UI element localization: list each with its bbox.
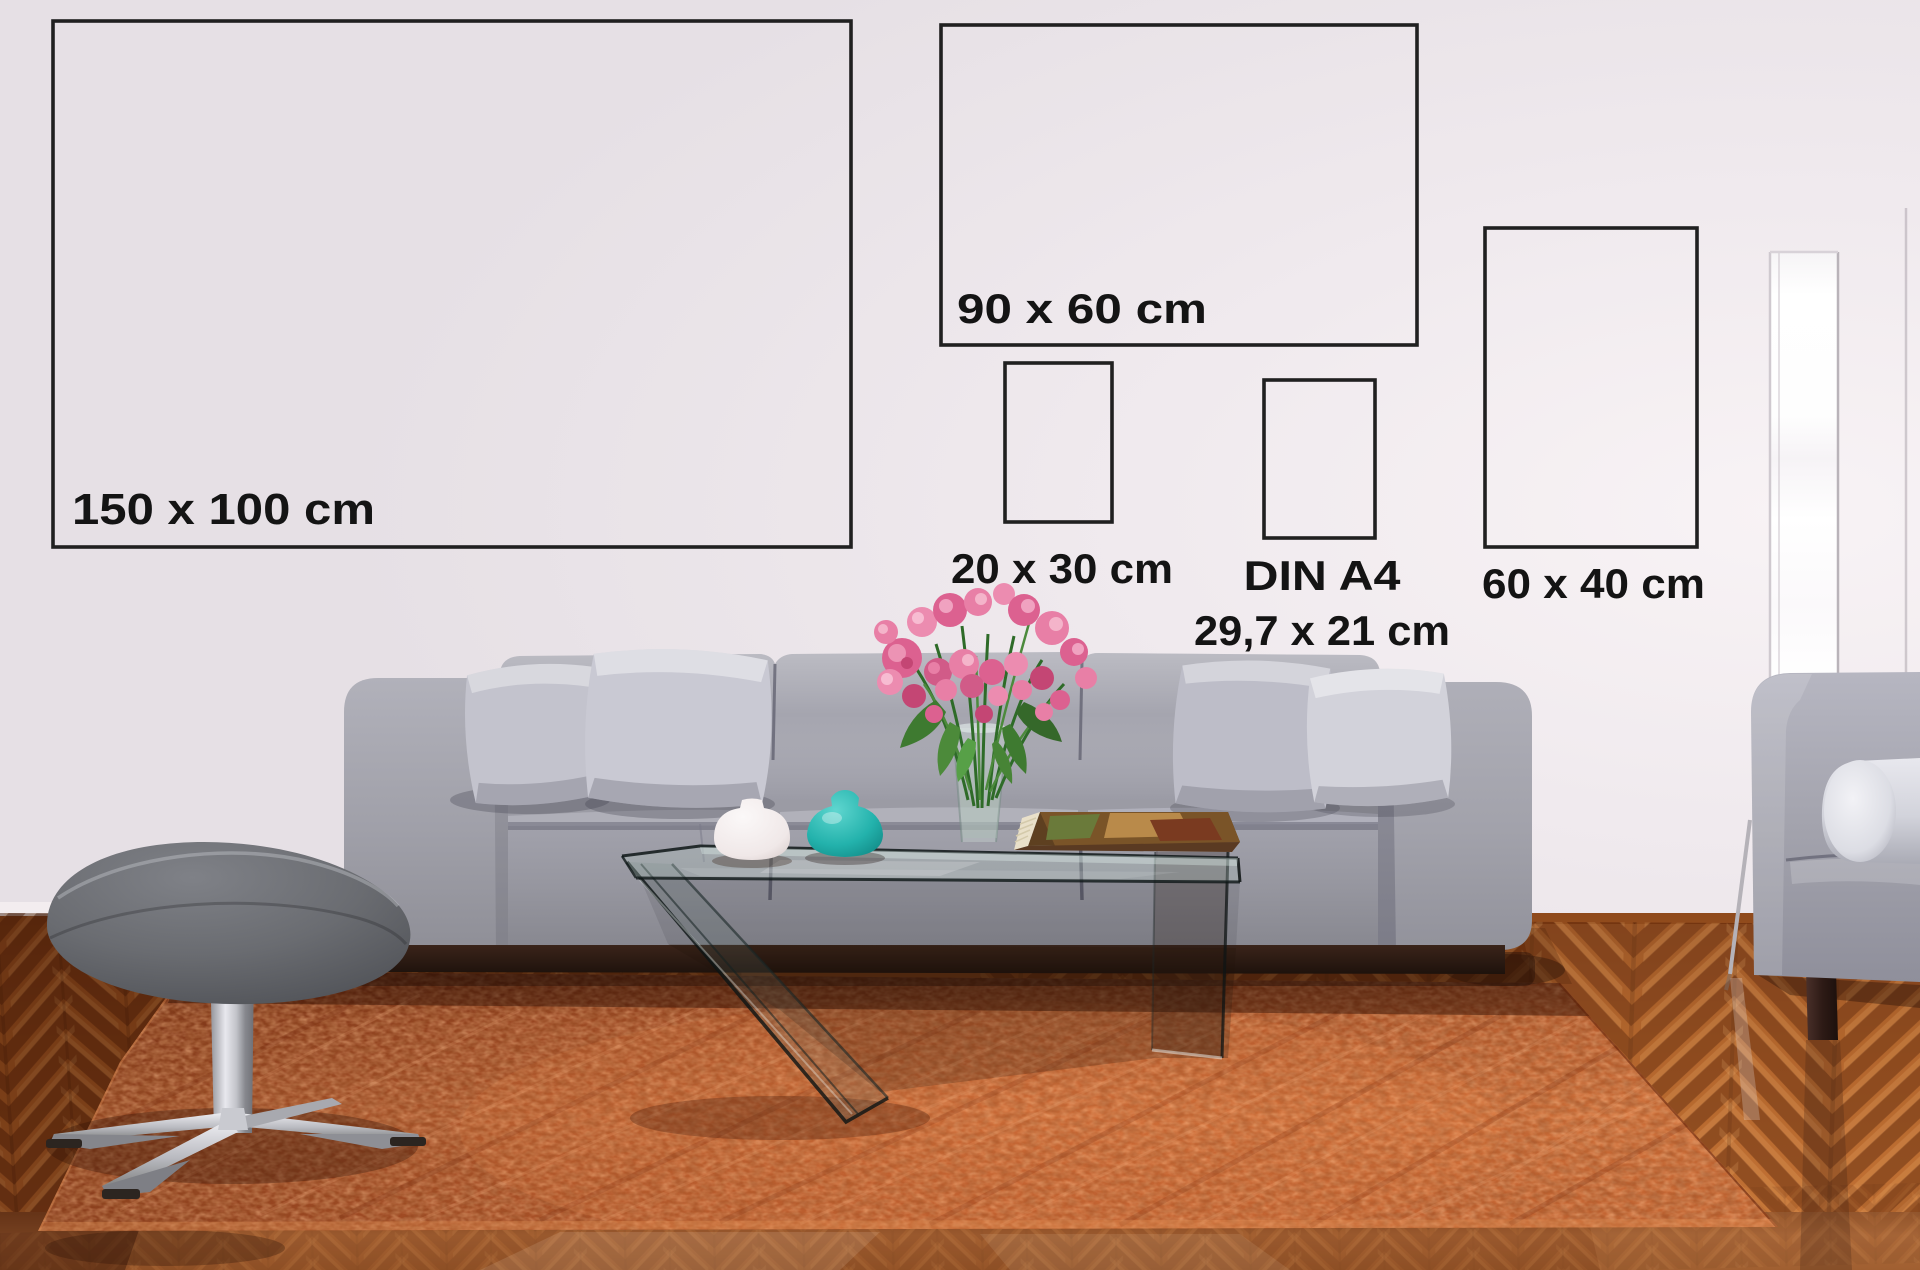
svg-text:20 x 30 cm: 20 x 30 cm: [951, 545, 1173, 592]
svg-text:60 x 40 cm: 60 x 40 cm: [1482, 560, 1705, 607]
svg-text:29,7 x 21 cm: 29,7 x 21 cm: [1194, 607, 1450, 654]
svg-text:150 x 100 cm: 150 x 100 cm: [72, 485, 375, 534]
svg-text:DIN A4: DIN A4: [1244, 552, 1402, 599]
svg-text:90 x 60 cm: 90 x 60 cm: [957, 285, 1207, 332]
